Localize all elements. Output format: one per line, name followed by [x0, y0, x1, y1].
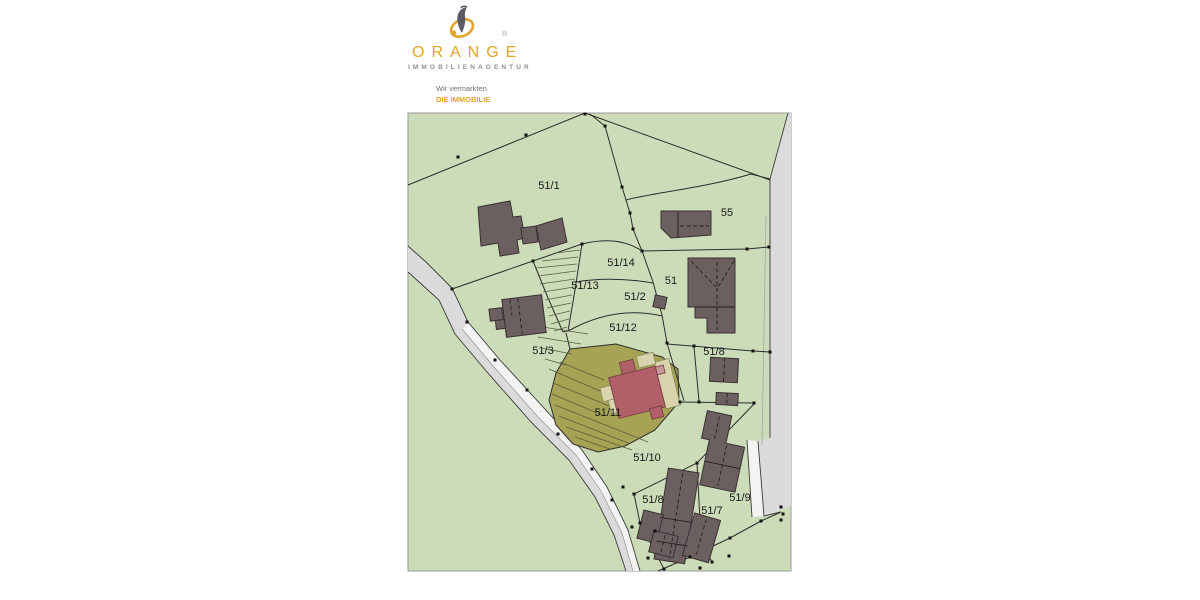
parcel-label-51-14: 51/14	[607, 257, 635, 269]
parcel-label-55: 55	[721, 207, 733, 219]
parcel-label-51-10: 51/10	[633, 452, 661, 464]
building-55	[661, 211, 711, 238]
parcel-label-51-11: 51/11	[595, 407, 622, 419]
parcel-label-51-2: 51/2	[624, 291, 645, 303]
parcel-label-51-1: 51/1	[538, 180, 559, 192]
site-plan-map: 51/1 55 51/14 51/13 51/2 51 51/12 51/3 5…	[0, 0, 1200, 600]
page: ® ORANGE IMMOBILIENAGENTUR Wir vermarkte…	[0, 0, 1200, 600]
parcel-label-51-8-mid: 51/8	[703, 346, 724, 358]
building-small-51-2	[653, 295, 667, 309]
parcel-label-51-12: 51/12	[609, 322, 637, 334]
building-51-1-b	[521, 226, 538, 244]
parcel-label-51-7: 51/7	[701, 505, 722, 517]
parcel-label-51-13: 51/13	[571, 280, 599, 292]
parcel-label-51-9: 51/9	[729, 492, 750, 504]
parcel-label-51-3: 51/3	[532, 345, 553, 357]
building-51-8-mid-a	[709, 357, 738, 382]
parcel-label-51-8-bottom: 51/8	[642, 494, 663, 506]
parcel-label-51: 51	[665, 275, 677, 287]
